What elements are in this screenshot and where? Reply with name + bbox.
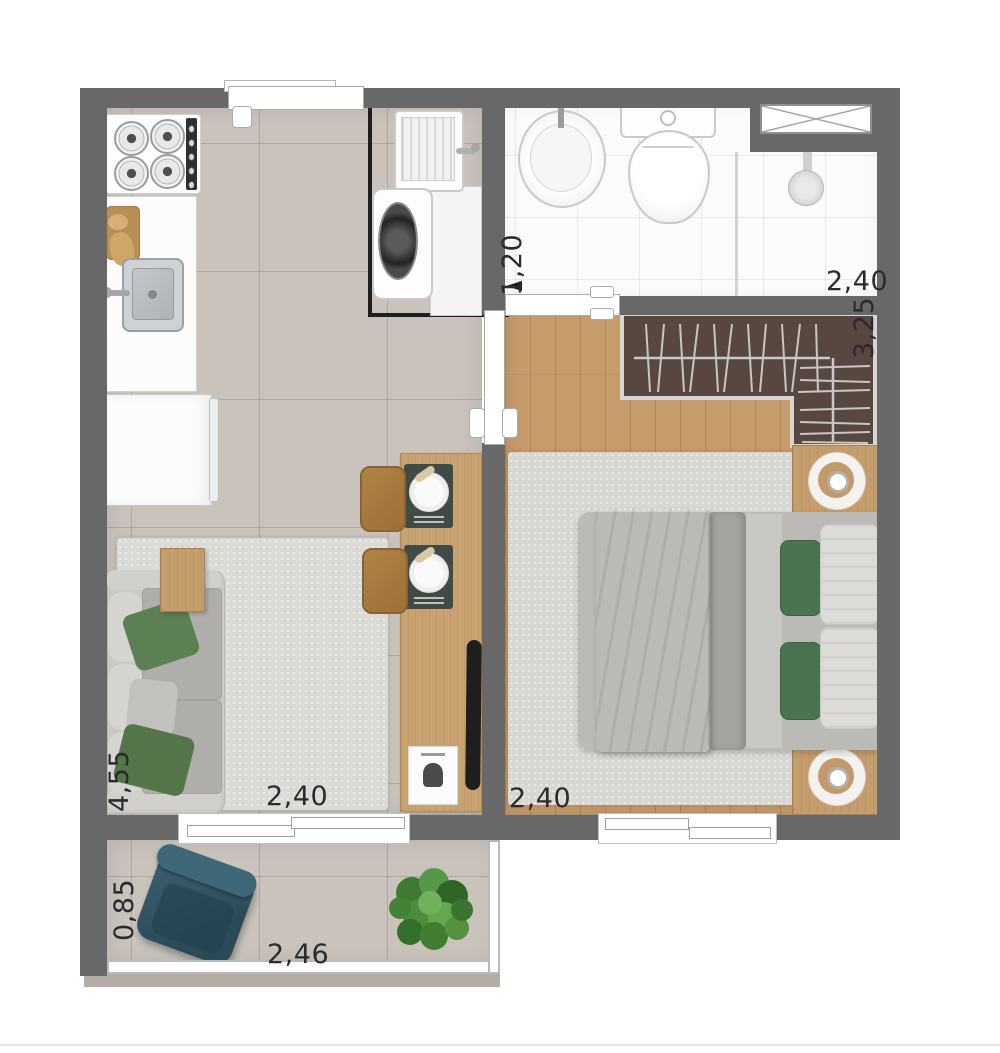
wall-bathroom-bedroom [618,296,877,315]
wall-bottom [408,815,598,840]
dim-bathroom-length: 2,40 [826,266,888,297]
bed-pillow-green [780,540,822,616]
entrance-door-handle [232,106,252,128]
stool [360,466,406,532]
sliding-door-panel [187,825,295,837]
bathroom-sink-bowl [530,124,592,192]
refrigerator [105,394,212,506]
dim-closet-wall: 3,25 [849,297,880,359]
bed-pillow-green [780,642,822,720]
bed-pillow-white [820,627,879,729]
tank-faucet-knob [471,143,480,152]
magazine-graphic [423,763,443,787]
bedroom-window [598,813,777,844]
tv [465,640,482,790]
cutlery-icon [414,521,444,523]
wall-bottom [775,815,900,840]
dim-living-width: 2,40 [266,781,328,812]
window-panel [605,818,689,830]
toilet-seat-line [642,146,694,148]
cutlery-icon [414,597,444,599]
wall-right [877,88,900,840]
bed-duvet [708,512,746,750]
bathroom-window [760,104,872,134]
wall-living-bedroom [482,443,505,815]
dim-balcony-width: 2,46 [267,939,329,970]
laundry-tank [394,110,464,192]
magazine-title [421,753,445,756]
bedroom-door-handle [469,408,485,438]
sink-drain-icon [148,290,157,299]
side-table [160,548,205,612]
image-bottom-border [0,1044,1000,1046]
shower-divider [735,152,738,296]
refrigerator-handle [209,398,219,502]
dim-balcony-depth: 0,85 [109,879,140,941]
balcony-railing-right [488,840,500,974]
sliding-door-panel [291,817,405,829]
lamp-center [827,471,849,493]
bread [108,214,128,230]
dim-bedroom-width: 2,40 [509,783,571,814]
washer-drum-icon [378,202,418,280]
bathroom-door-handle [590,286,614,298]
dim-living-length: 4,55 [104,750,135,812]
tank-basin [401,117,455,181]
bed-blanket [596,509,710,752]
cutlery-icon [414,602,444,604]
burner-icon [150,154,185,189]
wall-top [362,88,756,108]
wall-left [80,88,107,976]
laundry-counter [430,186,482,316]
cutlery-icon [414,516,444,518]
toilet-bowl [628,130,710,224]
plant-icon [382,858,482,958]
magazine [408,746,458,805]
window-panel [689,827,771,839]
bathroom-door-handle [590,308,614,320]
bed-pillow-white [820,524,879,625]
cooktop-knobs [186,118,197,190]
washing-machine [372,188,433,300]
shower-head-icon [788,170,824,206]
burner-icon [114,121,149,156]
balcony-outer-strip [84,974,500,987]
lamp-center [827,767,849,789]
bed-sheet [744,514,782,748]
balcony-sliding-door [178,813,410,844]
dim-bathroom-width: 1,20 [497,234,528,296]
cooktop [105,114,201,194]
toilet-flush-button [660,110,676,126]
kitchen-sink [122,258,184,332]
wall-bottom [80,815,178,840]
burner-icon [114,156,149,191]
burner-icon [150,119,185,154]
stool [362,548,408,614]
bedroom-door-handle [502,408,518,438]
window-x-icon [762,106,870,132]
closet [620,312,877,448]
floor-plan: 1,20 2,40 3,25 2,40 4,55 2,40 0,85 2,46 [0,0,1000,1053]
